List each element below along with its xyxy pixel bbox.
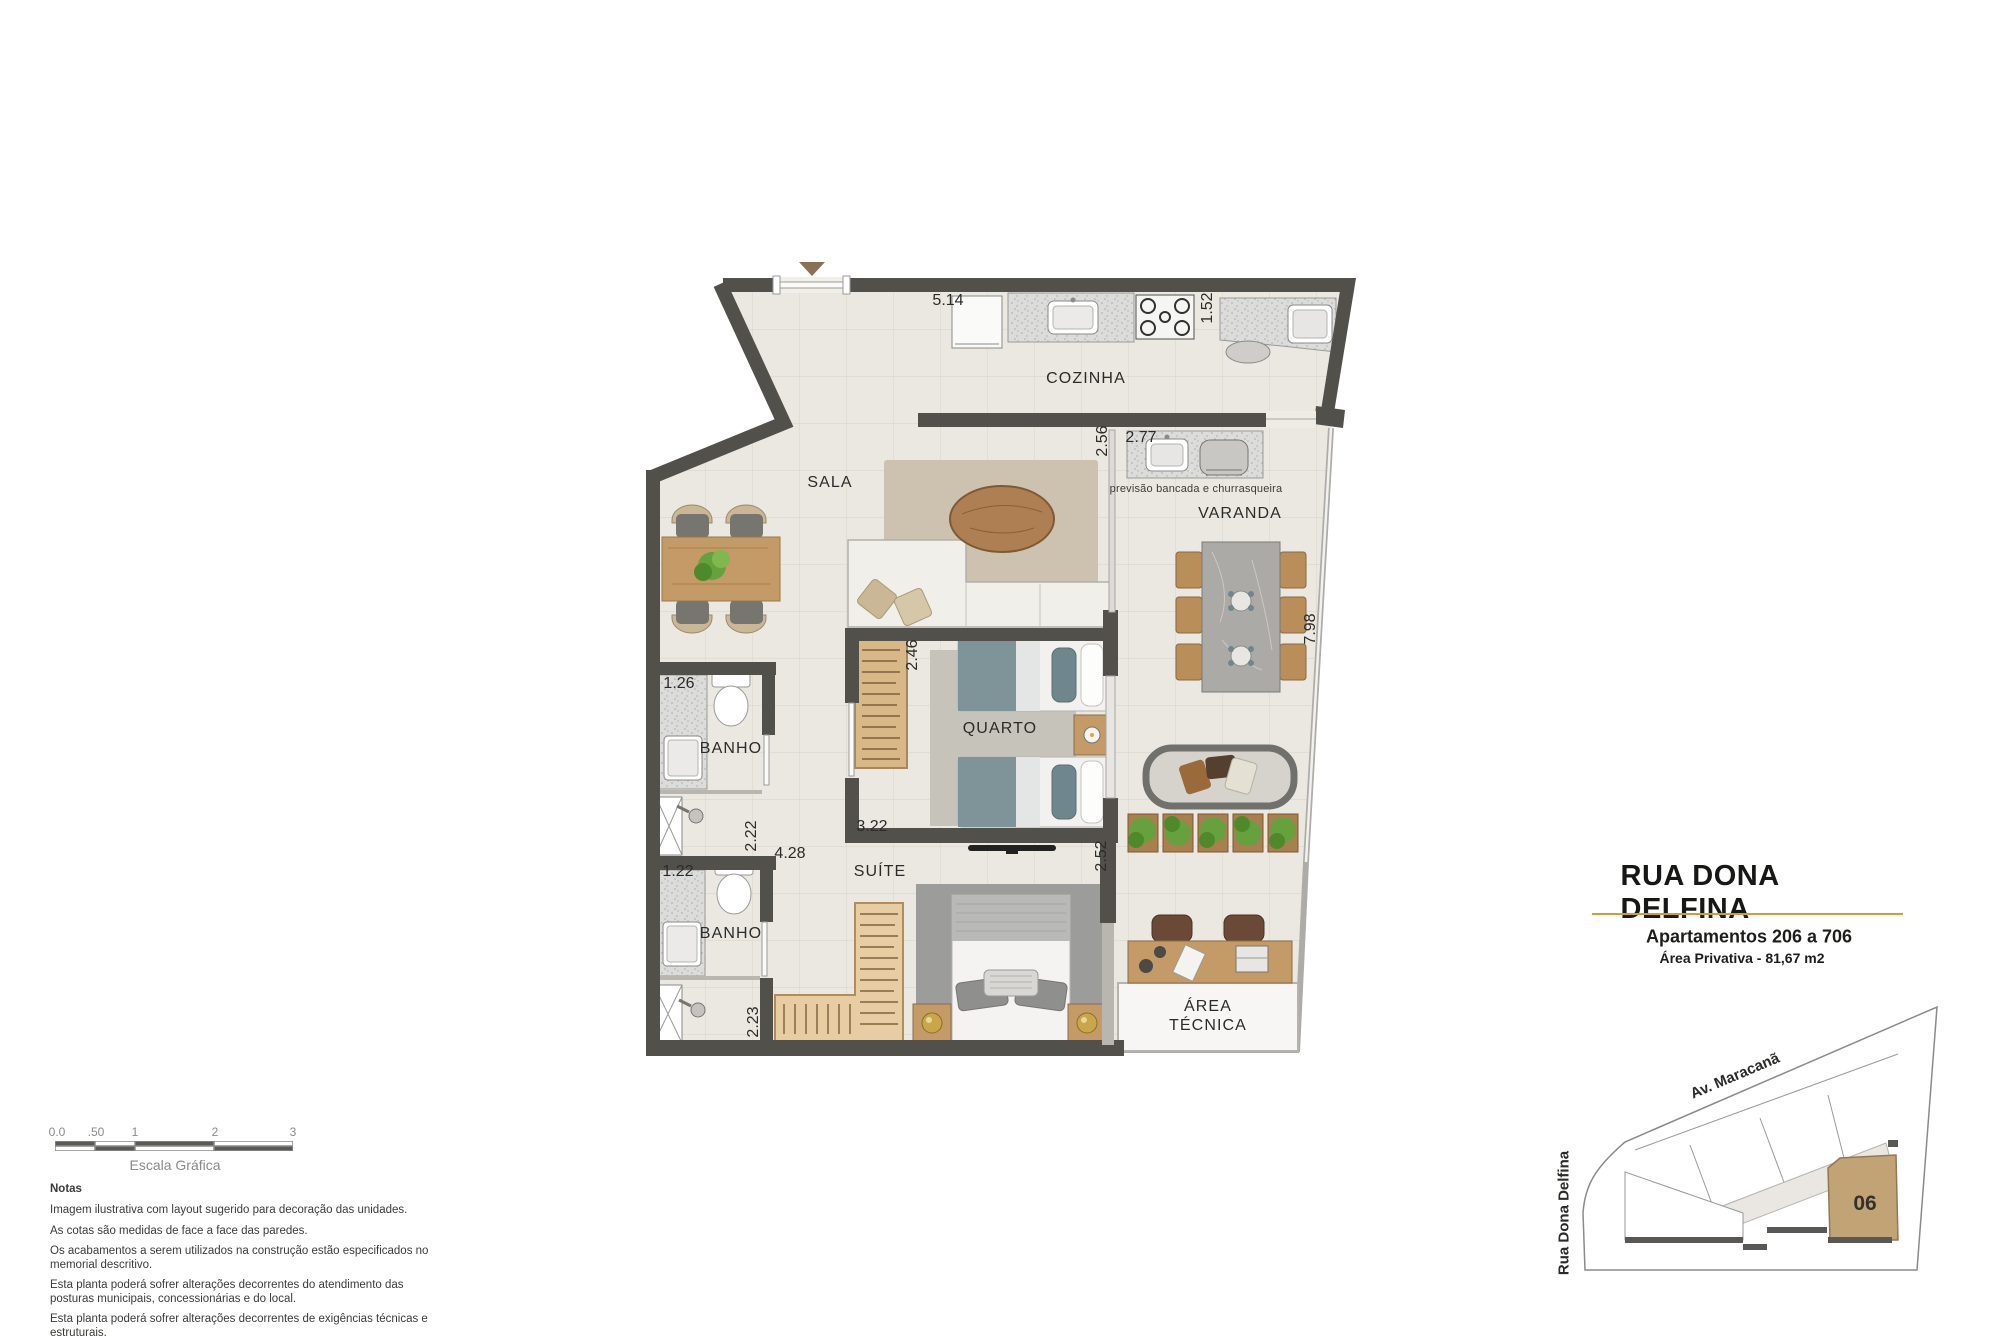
street-label-rua-dona-delfina: Rua Dona Delfina (1556, 1151, 1573, 1275)
apartments-range: Apartamentos 206 a 706 (1646, 927, 1852, 948)
notes-block: Notas Imagem ilustrativa com layout suge… (50, 1183, 450, 1336)
notes-heading: Notas (50, 1183, 450, 1195)
dim-varanda-bancada: 2.77 (1125, 429, 1156, 447)
note-line: As cotas são medidas de face a face das … (50, 1225, 450, 1239)
dim-quarto-varanda-depth: 2.52 (1093, 840, 1111, 871)
scale-bar-segment (95, 1146, 135, 1151)
scale-tick-3: 3 (290, 1125, 297, 1139)
dim-banho2-depth: 2.23 (745, 1006, 763, 1037)
unit-number: 06 (1853, 1192, 1876, 1216)
entry-door (773, 262, 850, 294)
floor-plan-drawing (600, 250, 1400, 1080)
churrasqueira-note: previsão bancada e churrasqueira (1110, 483, 1283, 495)
scale-bar-segment (55, 1146, 95, 1151)
dim-cozinha-depth: 1.52 (1199, 292, 1217, 323)
page-title: RUA DONA DELFINA (1621, 860, 1876, 926)
private-area-value: Área Privativa - 81,67 m2 (1660, 950, 1825, 966)
title-gold-rule (1592, 913, 1903, 915)
site-map (1540, 1000, 2003, 1300)
room-label-suite: SUÍTE (854, 863, 907, 881)
wall-light-suite-east (1102, 923, 1114, 1045)
dim-varanda-length: 7.98 (1302, 613, 1320, 644)
room-label-cozinha: COZINHA (1046, 370, 1126, 388)
scale-tick-0: 0.0 (49, 1125, 66, 1139)
note-line: Os acabamentos a serem utilizados na con… (50, 1245, 450, 1272)
dim-banho1-width: 1.26 (663, 675, 694, 693)
dim-suite-width: 4.28 (774, 845, 805, 863)
scale-tick-50: .50 (88, 1125, 105, 1139)
note-line: Esta planta poderá sofrer alterações dec… (50, 1313, 450, 1336)
note-line: Imagem ilustrativa com layout sugerido p… (50, 1204, 450, 1218)
floor-plan-sheet: COZINHA SALA VARANDA QUARTO SUÍTE BANHO … (0, 0, 2003, 1336)
dim-cozinha-width: 5.14 (932, 292, 963, 310)
room-label-sala: SALA (807, 474, 852, 492)
scale-caption: Escala Gráfica (129, 1157, 220, 1173)
room-label-banho-1: BANHO (700, 740, 762, 758)
room-label-quarto: QUARTO (963, 720, 1037, 738)
note-line: Esta planta poderá sofrer alterações dec… (50, 1279, 450, 1306)
room-label-area-tecnica-1: ÁREA (1184, 998, 1232, 1016)
scale-tick-2: 2 (212, 1125, 219, 1139)
dim-banho2-width: 1.22 (662, 863, 693, 881)
room-label-banho-2: BANHO (700, 925, 762, 943)
room-label-area-tecnica-2: TÉCNICA (1169, 1017, 1247, 1035)
dim-banho1-depth: 2.22 (743, 820, 761, 851)
dim-quarto-width: 3.22 (856, 818, 887, 836)
room-label-varanda: VARANDA (1198, 505, 1282, 523)
dim-sala-depth: 2.56 (1094, 425, 1112, 456)
scale-bar-segment (214, 1146, 293, 1151)
scale-bar-row-bottom (55, 1146, 293, 1151)
scale-bar-segment (135, 1146, 214, 1151)
scale-tick-1: 1 (132, 1125, 139, 1139)
dim-quarto-depth: 2.46 (904, 639, 922, 670)
